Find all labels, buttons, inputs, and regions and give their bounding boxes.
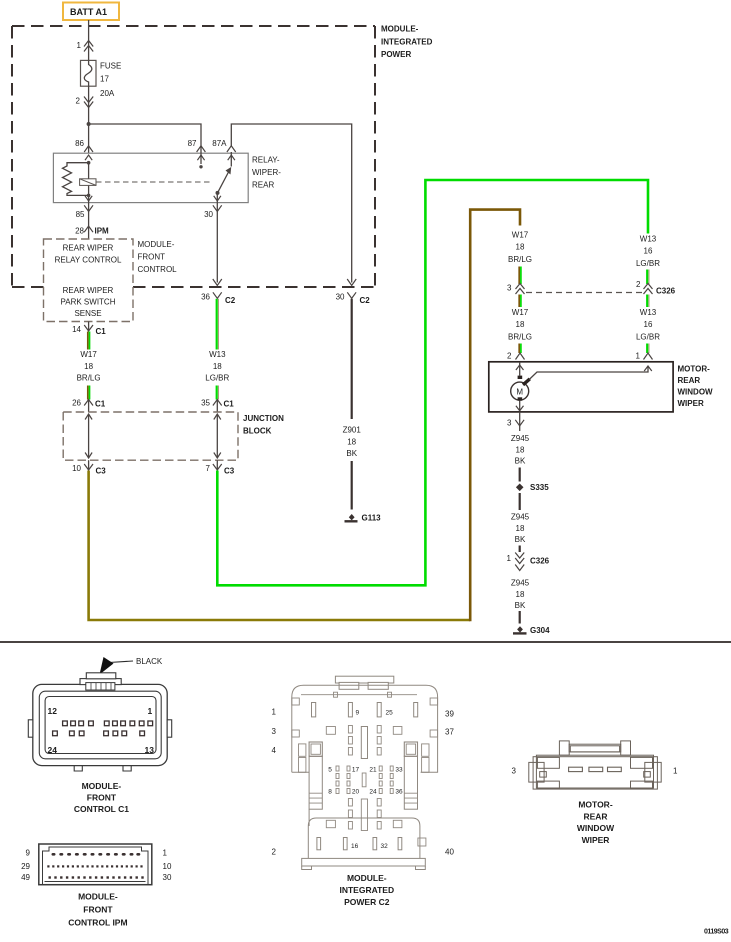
svg-text:18: 18	[516, 446, 525, 455]
svg-text:PARK SWITCH: PARK SWITCH	[61, 298, 116, 307]
svg-text:LG/BR: LG/BR	[205, 374, 229, 383]
svg-text:BATT A1: BATT A1	[70, 7, 107, 17]
svg-text:RELAY-: RELAY-	[252, 156, 280, 165]
svg-text:35: 35	[201, 399, 210, 408]
svg-text:BR/LG: BR/LG	[508, 255, 532, 264]
svg-text:2: 2	[76, 97, 81, 106]
svg-text:POWER: POWER	[381, 50, 411, 59]
svg-text:5: 5	[328, 767, 332, 774]
svg-text:BK: BK	[346, 449, 357, 458]
svg-text:REAR WIPER: REAR WIPER	[63, 244, 114, 253]
svg-text:W17: W17	[512, 231, 529, 240]
svg-text:SENSE: SENSE	[74, 309, 101, 318]
svg-text:18: 18	[516, 524, 525, 533]
svg-text:18: 18	[213, 362, 222, 371]
svg-text:17: 17	[352, 767, 360, 774]
svg-text:W17: W17	[80, 350, 97, 359]
svg-text:26: 26	[72, 399, 81, 408]
svg-text:REAR WIPER: REAR WIPER	[63, 286, 114, 295]
svg-text:3: 3	[272, 727, 277, 736]
svg-text:86: 86	[75, 139, 84, 148]
svg-text:Z945: Z945	[511, 434, 530, 443]
svg-text:CONTROL C1: CONTROL C1	[74, 804, 129, 814]
svg-text:Z901: Z901	[343, 426, 362, 435]
svg-text:REAR: REAR	[252, 181, 274, 190]
svg-text:16: 16	[644, 320, 653, 329]
svg-text:29: 29	[21, 862, 30, 871]
svg-text:12: 12	[48, 706, 58, 716]
svg-text:16: 16	[644, 247, 653, 256]
svg-text:WIPER: WIPER	[582, 835, 610, 845]
svg-text:2: 2	[636, 280, 641, 289]
svg-text:W13: W13	[640, 235, 657, 244]
svg-text:30: 30	[336, 293, 345, 302]
svg-text:33: 33	[395, 767, 403, 774]
svg-text:BLACK: BLACK	[136, 657, 163, 666]
svg-text:2: 2	[507, 352, 512, 361]
svg-text:18: 18	[516, 243, 525, 252]
svg-text:36: 36	[201, 293, 210, 302]
svg-text:BK: BK	[515, 535, 526, 544]
svg-text:18: 18	[516, 320, 525, 329]
svg-text:C326: C326	[530, 557, 550, 566]
svg-text:17: 17	[100, 75, 109, 84]
svg-text:MODULE-: MODULE-	[381, 25, 419, 34]
svg-text:40: 40	[445, 848, 454, 857]
svg-text:4: 4	[272, 746, 277, 755]
svg-text:30: 30	[204, 210, 213, 219]
svg-text:REAR: REAR	[678, 376, 701, 385]
svg-text:WINDOW: WINDOW	[678, 388, 714, 397]
svg-text:10: 10	[163, 862, 172, 871]
svg-text:BLOCK: BLOCK	[243, 427, 272, 436]
svg-text:FRONT: FRONT	[87, 793, 117, 803]
svg-text:LG/BR: LG/BR	[636, 259, 660, 268]
svg-text:0119S03: 0119S03	[704, 929, 729, 936]
svg-text:30: 30	[163, 873, 172, 882]
svg-text:1: 1	[507, 554, 512, 563]
svg-text:JUNCTION: JUNCTION	[243, 414, 284, 423]
svg-text:INTEGRATED: INTEGRATED	[339, 885, 394, 895]
svg-text:3: 3	[507, 419, 512, 428]
svg-text:14: 14	[72, 325, 81, 334]
svg-text:39: 39	[445, 710, 454, 719]
svg-text:1: 1	[163, 849, 168, 858]
svg-text:C326: C326	[656, 287, 676, 296]
svg-text:20A: 20A	[100, 89, 115, 98]
svg-text:C1: C1	[224, 400, 235, 409]
svg-text:POWER C2: POWER C2	[344, 897, 390, 907]
svg-text:C2: C2	[225, 296, 236, 305]
svg-text:CONTROL: CONTROL	[138, 265, 178, 274]
svg-text:2: 2	[272, 848, 277, 857]
svg-text:MODULE-: MODULE-	[347, 873, 387, 883]
svg-text:87A: 87A	[212, 139, 227, 148]
svg-text:24: 24	[48, 745, 58, 755]
svg-text:8: 8	[328, 789, 332, 796]
svg-text:1: 1	[673, 767, 678, 776]
svg-text:BK: BK	[515, 457, 526, 466]
svg-text:16: 16	[351, 843, 359, 850]
svg-text:Z945: Z945	[511, 513, 530, 522]
svg-text:1: 1	[272, 708, 277, 717]
svg-text:3: 3	[512, 767, 517, 776]
svg-text:MOTOR-: MOTOR-	[578, 800, 612, 810]
svg-text:BK: BK	[515, 601, 526, 610]
svg-text:24: 24	[369, 789, 377, 796]
svg-text:9: 9	[26, 849, 31, 858]
svg-text:MODULE-: MODULE-	[138, 240, 175, 249]
svg-text:CONTROL IPM: CONTROL IPM	[68, 918, 127, 928]
svg-text:W13: W13	[209, 350, 226, 359]
svg-text:21: 21	[369, 767, 377, 774]
svg-text:20: 20	[352, 789, 360, 796]
svg-text:13: 13	[145, 745, 155, 755]
svg-text:BR/LG: BR/LG	[77, 374, 101, 383]
svg-text:7: 7	[206, 464, 211, 473]
svg-text:MODULE-: MODULE-	[78, 892, 118, 902]
svg-text:IPM: IPM	[95, 227, 110, 236]
svg-text:WIPER-: WIPER-	[252, 168, 281, 177]
svg-text:C1: C1	[95, 400, 106, 409]
svg-text:25: 25	[386, 710, 394, 717]
svg-text:18: 18	[84, 362, 93, 371]
svg-text:G304: G304	[530, 626, 550, 635]
svg-text:REAR: REAR	[583, 812, 607, 822]
svg-text:9: 9	[356, 710, 360, 717]
svg-text:FUSE: FUSE	[100, 62, 121, 71]
svg-text:C3: C3	[96, 467, 107, 476]
svg-text:FRONT: FRONT	[138, 253, 166, 262]
svg-text:C2: C2	[360, 296, 371, 305]
svg-text:M: M	[516, 387, 523, 396]
svg-text:Z945: Z945	[511, 579, 530, 588]
svg-text:BR/LG: BR/LG	[508, 333, 532, 342]
svg-text:3: 3	[507, 284, 512, 293]
svg-text:WIPER: WIPER	[678, 399, 704, 408]
svg-text:37: 37	[445, 728, 454, 737]
svg-text:49: 49	[21, 873, 30, 882]
svg-text:1: 1	[636, 352, 641, 361]
svg-text:LG/BR: LG/BR	[636, 333, 660, 342]
svg-text:85: 85	[76, 210, 85, 219]
svg-text:W17: W17	[512, 308, 529, 317]
svg-text:C1: C1	[96, 327, 107, 336]
svg-text:87: 87	[188, 139, 197, 148]
svg-text:G113: G113	[362, 514, 382, 523]
svg-text:1: 1	[77, 41, 82, 50]
svg-text:W13: W13	[640, 308, 657, 317]
svg-text:32: 32	[381, 843, 389, 850]
svg-text:C3: C3	[224, 467, 235, 476]
svg-text:INTEGRATED: INTEGRATED	[381, 38, 433, 47]
svg-text:S335: S335	[530, 483, 549, 492]
svg-text:28: 28	[75, 227, 84, 236]
svg-text:FRONT: FRONT	[83, 905, 113, 915]
svg-text:WINDOW: WINDOW	[577, 823, 615, 833]
svg-text:MOTOR-: MOTOR-	[678, 365, 711, 374]
svg-text:18: 18	[347, 438, 356, 447]
svg-text:1: 1	[148, 706, 153, 716]
svg-text:18: 18	[516, 590, 525, 599]
svg-text:10: 10	[72, 464, 81, 473]
svg-text:RELAY CONTROL: RELAY CONTROL	[55, 256, 122, 265]
svg-text:MODULE-: MODULE-	[82, 781, 122, 791]
svg-text:36: 36	[395, 789, 403, 796]
